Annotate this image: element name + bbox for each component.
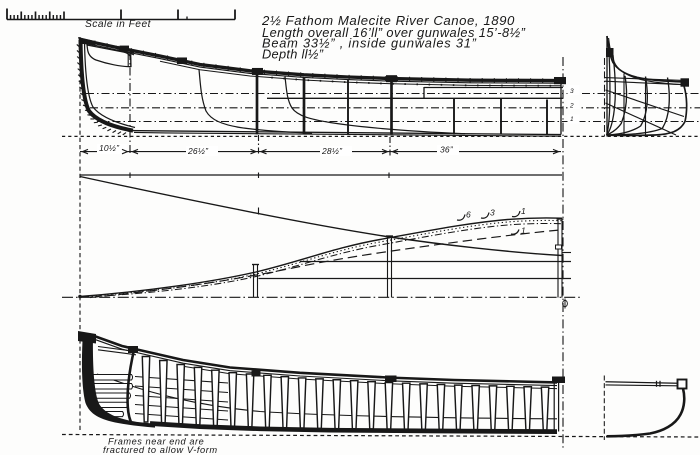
svg-text:1: 1 (570, 116, 574, 123)
svg-text:6: 6 (466, 210, 471, 220)
svg-text:2: 2 (569, 103, 574, 110)
svg-text:10½”: 10½” (99, 143, 120, 153)
svg-text:1: 1 (521, 226, 526, 236)
svg-text:26½”: 26½” (187, 146, 209, 156)
svg-text:36”: 36” (440, 144, 454, 154)
svg-text:3: 3 (570, 88, 574, 95)
svg-text:3: 3 (490, 208, 495, 218)
svg-text:Depth ll½”: Depth ll½” (262, 47, 324, 62)
svg-text:fractured to allow V-form: fractured to allow V-form (103, 445, 218, 455)
svg-text:1: 1 (521, 206, 526, 216)
svg-text:Scale in Feet: Scale in Feet (85, 19, 152, 30)
svg-text:28½”: 28½” (321, 146, 343, 156)
